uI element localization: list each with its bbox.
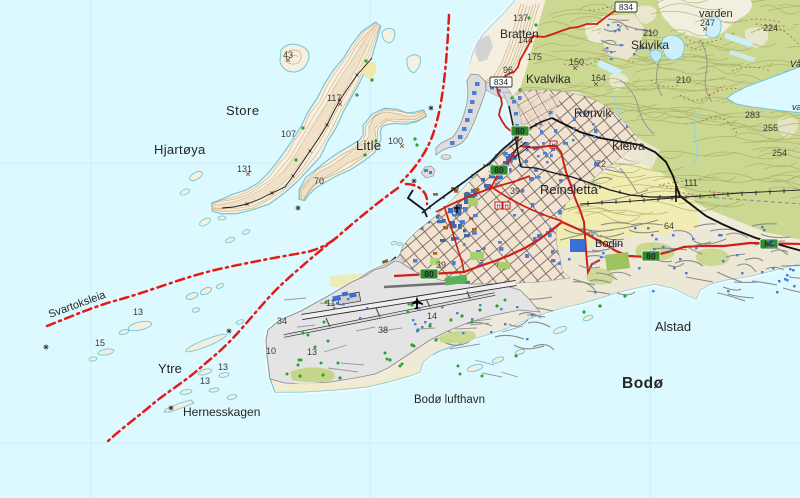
- svg-text:H: H: [496, 204, 500, 210]
- svg-text:Hjartøya: Hjartøya: [154, 142, 206, 157]
- svg-text:80: 80: [494, 165, 504, 175]
- svg-text:164: 164: [591, 73, 606, 83]
- svg-text:10: 10: [266, 346, 276, 356]
- svg-text:Rønvik: Rønvik: [574, 106, 612, 120]
- svg-text:834: 834: [494, 77, 508, 87]
- svg-text:Bodø lufthavn: Bodø lufthavn: [414, 394, 485, 406]
- svg-text:34: 34: [277, 316, 287, 326]
- svg-text:247: 247: [700, 18, 715, 28]
- svg-text:834: 834: [619, 2, 633, 12]
- svg-text:Bodin: Bodin: [595, 238, 623, 250]
- svg-text:255: 255: [763, 123, 778, 133]
- svg-text:224: 224: [763, 23, 778, 33]
- svg-text:39: 39: [510, 186, 520, 196]
- svg-text:107: 107: [281, 129, 296, 139]
- svg-text:150: 150: [569, 57, 584, 67]
- svg-text:144: 144: [518, 35, 533, 45]
- svg-text:Reinsletta: Reinsletta: [540, 182, 599, 197]
- svg-text:Kvalvika: Kvalvika: [526, 72, 571, 86]
- svg-text:137: 137: [513, 13, 528, 23]
- svg-text:175: 175: [527, 52, 542, 62]
- svg-text:210: 210: [676, 75, 691, 85]
- svg-text:H: H: [504, 204, 508, 210]
- svg-text:96: 96: [503, 65, 513, 75]
- svg-text:va: va: [792, 102, 800, 112]
- svg-text:43: 43: [283, 50, 293, 60]
- svg-text:13: 13: [307, 347, 317, 357]
- svg-text:72: 72: [596, 159, 606, 169]
- svg-text:283: 283: [745, 110, 760, 120]
- svg-text:Kleiva: Kleiva: [612, 139, 645, 153]
- svg-text:Alstad: Alstad: [655, 319, 691, 334]
- svg-text:Bodø: Bodø: [622, 375, 664, 392]
- svg-text:15: 15: [95, 338, 105, 348]
- svg-text:64: 64: [664, 221, 674, 231]
- svg-text:11: 11: [326, 298, 335, 308]
- svg-text:117: 117: [327, 93, 341, 103]
- svg-text:70: 70: [314, 176, 324, 186]
- svg-text:Litle: Litle: [356, 138, 381, 153]
- svg-text:13: 13: [218, 362, 228, 372]
- svg-text:Vå: Vå: [790, 59, 800, 69]
- svg-text:38: 38: [378, 325, 388, 335]
- svg-text:Store: Store: [226, 103, 260, 118]
- svg-text:Skivika: Skivika: [631, 38, 669, 52]
- svg-text:111: 111: [684, 178, 698, 188]
- svg-text:14: 14: [427, 311, 437, 321]
- svg-text:210: 210: [643, 28, 658, 38]
- svg-text:80: 80: [515, 126, 525, 136]
- svg-text:39: 39: [436, 260, 446, 270]
- svg-text:Ytre: Ytre: [158, 361, 182, 376]
- svg-text:254: 254: [772, 148, 787, 158]
- svg-text:13: 13: [200, 376, 210, 386]
- svg-text:Hernesskagen: Hernesskagen: [183, 405, 260, 419]
- svg-text:80: 80: [424, 269, 434, 279]
- svg-text:13: 13: [133, 307, 143, 317]
